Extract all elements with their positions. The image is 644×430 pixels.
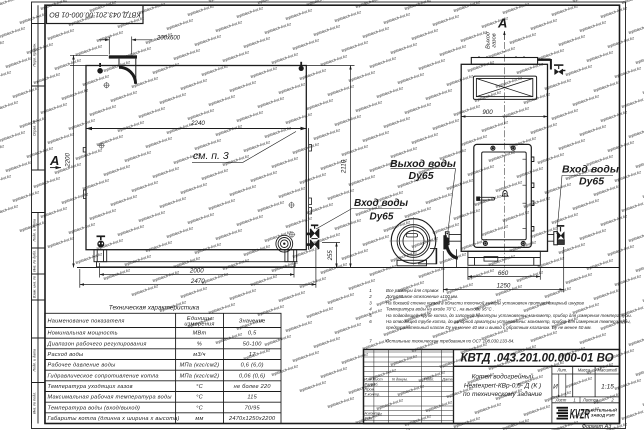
svg-text:teplotech-kvr.kz: teplotech-kvr.kz bbox=[565, 271, 593, 285]
svg-text:МПа (кгс/см2): МПа (кгс/см2) bbox=[180, 373, 220, 379]
svg-text:Максимальная рабочая температу: Максимальная рабочая температура воды bbox=[48, 395, 172, 401]
svg-text:teplotech-kvr.kz: teplotech-kvr.kz bbox=[495, 179, 523, 193]
svg-text:teplotech-kvr.kz: teplotech-kvr.kz bbox=[103, 163, 131, 177]
svg-text:На отводящей трубе котла, до з: На отводящей трубе котла, до запорной ар… bbox=[386, 319, 631, 324]
svg-text:teplotech-kvr.kz: teplotech-kvr.kz bbox=[558, 137, 586, 151]
svg-text:teplotech-kvr.kz: teplotech-kvr.kz bbox=[334, 9, 362, 23]
svg-text:teplotech-kvr.kz: teplotech-kvr.kz bbox=[362, 25, 390, 39]
svg-text:teplotech-kvr.kz: teplotech-kvr.kz bbox=[621, 407, 644, 421]
svg-text:teplotech-kvr.kz: teplotech-kvr.kz bbox=[327, 291, 355, 305]
svg-text:teplotech-kvr.kz: teplotech-kvr.kz bbox=[285, 111, 313, 125]
svg-text:teplotech-kvr.kz: teplotech-kvr.kz bbox=[530, 329, 558, 343]
svg-text:teplotech-kvr.kz: teplotech-kvr.kz bbox=[40, 101, 68, 115]
svg-text:KVZR: KVZR bbox=[570, 407, 590, 422]
svg-text:teplotech-kvr.kz: teplotech-kvr.kz bbox=[509, 31, 537, 45]
svg-text:Допустимое отклонение ±100 мм: Допустимое отклонение ±100 мм. bbox=[385, 294, 458, 299]
svg-text:teplotech-kvr.kz: teplotech-kvr.kz bbox=[523, 403, 551, 417]
svg-text:teplotech-kvr.kz: teplotech-kvr.kz bbox=[292, 37, 320, 51]
svg-text:teplotech-kvr.kz: teplotech-kvr.kz bbox=[75, 147, 103, 161]
svg-text:На подводящей трубе котла, до: На подводящей трубе котла, до запорной а… bbox=[386, 313, 632, 318]
svg-text:Остальные технические требован: Остальные технические требования по ОСТ … bbox=[386, 339, 515, 344]
svg-text:Т.контр.: Т.контр. bbox=[365, 392, 381, 397]
svg-text:teplotech-kvr.kz: teplotech-kvr.kz bbox=[138, 105, 166, 119]
svg-text:teplotech-kvr.kz: teplotech-kvr.kz bbox=[376, 397, 404, 411]
svg-text:teplotech-kvr.kz: teplotech-kvr.kz bbox=[495, 75, 523, 89]
svg-text:2470х1250х2200: 2470х1250х2200 bbox=[228, 416, 276, 422]
svg-text:2000: 2000 bbox=[189, 268, 204, 275]
svg-text:teplotech-kvr.kz: teplotech-kvr.kz bbox=[131, 283, 159, 297]
svg-text:teplotech-kvr.kz: teplotech-kvr.kz bbox=[257, 199, 285, 213]
svg-text:0,06 (0,6): 0,06 (0,6) bbox=[239, 373, 265, 379]
svg-text:teplotech-kvr.kz: teplotech-kvr.kz bbox=[152, 269, 180, 283]
svg-text:teplotech-kvr.kz: teplotech-kvr.kz bbox=[271, 51, 299, 65]
svg-text:teplotech-kvr.kz: teplotech-kvr.kz bbox=[61, 191, 89, 205]
svg-text:teplotech-kvr.kz: teplotech-kvr.kz bbox=[404, 101, 432, 115]
svg-text:teplotech-kvr.kz: teplotech-kvr.kz bbox=[600, 5, 628, 19]
svg-text:teplotech-kvr.kz: teplotech-kvr.kz bbox=[250, 169, 278, 183]
svg-text:teplotech-kvr.kz: teplotech-kvr.kz bbox=[446, 177, 474, 191]
svg-text:Выход воды: Выход воды bbox=[390, 158, 456, 170]
svg-text:teplotech-kvr.kz: teplotech-kvr.kz bbox=[600, 213, 628, 227]
svg-text:teplotech-kvr.kz: teplotech-kvr.kz bbox=[467, 163, 495, 177]
svg-text:Габариты котла (длинна х ширин: Габариты котла (длинна х ширина х высота… bbox=[48, 416, 180, 422]
svg-text:teplotech-kvr.kz: teplotech-kvr.kz bbox=[383, 115, 411, 129]
svg-text:teplotech-kvr.kz: teplotech-kvr.kz bbox=[166, 17, 194, 31]
svg-text:Номинальная мощность: Номинальная мощность bbox=[48, 331, 118, 337]
svg-text:Масштаб: Масштаб bbox=[598, 368, 618, 373]
svg-text:teplotech-kvr.kz: teplotech-kvr.kz bbox=[635, 259, 644, 273]
svg-text:teplotech-kvr.kz: teplotech-kvr.kz bbox=[390, 353, 418, 367]
svg-text:teplotech-kvr.kz: teplotech-kvr.kz bbox=[635, 155, 644, 169]
svg-text:teplotech-kvr.kz: teplotech-kvr.kz bbox=[138, 1, 166, 15]
svg-text:teplotech-kvr.kz: teplotech-kvr.kz bbox=[5, 55, 33, 69]
svg-text:17: 17 bbox=[249, 352, 256, 358]
svg-text:teplotech-kvr.kz: teplotech-kvr.kz bbox=[404, 413, 432, 427]
svg-text:teplotech-kvr.kz: teplotech-kvr.kz bbox=[621, 95, 644, 109]
svg-text:teplotech-kvr.kz: teplotech-kvr.kz bbox=[516, 61, 544, 75]
svg-text:teplotech-kvr.kz: teplotech-kvr.kz bbox=[0, 173, 12, 187]
svg-text:teplotech-kvr.kz: teplotech-kvr.kz bbox=[75, 251, 103, 265]
svg-text:°С: °С bbox=[196, 395, 203, 401]
svg-text:N докум.: N докум. bbox=[392, 376, 408, 381]
svg-text:teplotech-kvr.kz: teplotech-kvr.kz bbox=[432, 13, 460, 27]
svg-text:teplotech-kvr.kz: teplotech-kvr.kz bbox=[236, 213, 264, 227]
svg-text:teplotech-kvr.kz: teplotech-kvr.kz bbox=[201, 167, 229, 181]
svg-text:Рабочее давление воды: Рабочее давление воды bbox=[48, 363, 116, 369]
svg-text:teplotech-kvr.kz: teplotech-kvr.kz bbox=[439, 251, 467, 265]
svg-text:teplotech-kvr.kz: teplotech-kvr.kz bbox=[229, 79, 257, 93]
svg-text:teplotech-kvr.kz: teplotech-kvr.kz bbox=[383, 11, 411, 25]
svg-text:teplotech-kvr.kz: teplotech-kvr.kz bbox=[257, 303, 285, 317]
svg-text:%: % bbox=[197, 341, 202, 347]
svg-text:teplotech-kvr.kz: teplotech-kvr.kz bbox=[565, 375, 593, 389]
svg-text:teplotech-kvr.kz: teplotech-kvr.kz bbox=[159, 195, 187, 209]
svg-text:teplotech-kvr.kz: teplotech-kvr.kz bbox=[117, 223, 145, 237]
svg-text:teplotech-kvr.kz: teplotech-kvr.kz bbox=[5, 159, 33, 173]
svg-text:Утв.: Утв. bbox=[365, 416, 374, 421]
svg-text:teplotech-kvr.kz: teplotech-kvr.kz bbox=[0, 0, 19, 9]
svg-text:teplotech-kvr.kz: teplotech-kvr.kz bbox=[180, 285, 208, 299]
svg-text:teplotech-kvr.kz: teplotech-kvr.kz bbox=[257, 0, 285, 5]
svg-text:Котел водогрейный: Котел водогрейный bbox=[472, 373, 534, 381]
svg-text:teplotech-kvr.kz: teplotech-kvr.kz bbox=[145, 239, 173, 253]
svg-text:teplotech-kvr.kz: teplotech-kvr.kz bbox=[138, 209, 166, 223]
svg-text:teplotech-kvr.kz: teplotech-kvr.kz bbox=[243, 35, 271, 49]
svg-text:teplotech-kvr.kz: teplotech-kvr.kz bbox=[61, 87, 89, 101]
svg-text:teplotech-kvr.kz: teplotech-kvr.kz bbox=[306, 305, 334, 319]
svg-text:2240: 2240 bbox=[190, 120, 205, 127]
svg-text:Расход воды: Расход воды bbox=[48, 352, 84, 358]
svg-text:2110: 2110 bbox=[341, 159, 348, 174]
svg-text:teplotech-kvr.kz: teplotech-kvr.kz bbox=[159, 91, 187, 105]
svg-text:teplotech-kvr.kz: teplotech-kvr.kz bbox=[19, 11, 47, 25]
svg-text:teplotech-kvr.kz: teplotech-kvr.kz bbox=[397, 383, 425, 397]
svg-text:teplotech-kvr.kz: teplotech-kvr.kz bbox=[47, 27, 75, 41]
svg-text:teplotech-kvr.kz: teplotech-kvr.kz bbox=[341, 247, 369, 261]
svg-text:teplotech-kvr.kz: teplotech-kvr.kz bbox=[47, 235, 75, 249]
svg-text:teplotech-kvr.kz: teplotech-kvr.kz bbox=[614, 377, 642, 391]
svg-text:1: 1 bbox=[369, 288, 372, 293]
svg-text:teplotech-kvr.kz: teplotech-kvr.kz bbox=[341, 351, 369, 365]
svg-text:teplotech-kvr.kz: teplotech-kvr.kz bbox=[586, 49, 614, 63]
svg-text:teplotech-kvr.kz: teplotech-kvr.kz bbox=[425, 191, 453, 205]
svg-text:200х600: 200х600 bbox=[156, 35, 181, 41]
svg-text:50-100: 50-100 bbox=[243, 341, 263, 347]
svg-text:teplotech-kvr.kz: teplotech-kvr.kz bbox=[250, 273, 278, 287]
svg-text:teplotech-kvr.kz: teplotech-kvr.kz bbox=[586, 257, 614, 271]
svg-text:°С: °С bbox=[196, 405, 203, 411]
svg-text:А: А bbox=[49, 153, 59, 168]
svg-text:teplotech-kvr.kz: teplotech-kvr.kz bbox=[187, 107, 215, 121]
svg-text:teplotech-kvr.kz: teplotech-kvr.kz bbox=[544, 285, 572, 299]
svg-text:teplotech-kvr.kz: teplotech-kvr.kz bbox=[313, 23, 341, 37]
svg-text:teplotech-kvr.kz: teplotech-kvr.kz bbox=[264, 125, 292, 139]
svg-text:teplotech-kvr.kz: teplotech-kvr.kz bbox=[103, 267, 131, 281]
svg-text:teplotech-kvr.kz: teplotech-kvr.kz bbox=[418, 57, 446, 71]
svg-text:На боковой стенке котла в обла: На боковой стенке котла в области топочн… bbox=[386, 300, 584, 305]
svg-text:Температура воды (вход/выход): Температура воды (вход/выход) bbox=[48, 405, 141, 411]
svg-text:Формат А3: Формат А3 bbox=[582, 424, 612, 430]
svg-text:teplotech-kvr.kz: teplotech-kvr.kz bbox=[551, 211, 579, 225]
svg-text:teplotech-kvr.kz: teplotech-kvr.kz bbox=[341, 39, 369, 53]
svg-text:1:15: 1:15 bbox=[601, 384, 614, 391]
svg-text:1250: 1250 bbox=[497, 283, 511, 290]
svg-text:teplotech-kvr.kz: teplotech-kvr.kz bbox=[453, 103, 481, 117]
svg-text:teplotech-kvr.kz: teplotech-kvr.kz bbox=[341, 143, 369, 157]
svg-text:teplotech-kvr.kz: teplotech-kvr.kz bbox=[579, 227, 607, 241]
svg-text:teplotech-kvr.kz: teplotech-kvr.kz bbox=[215, 19, 243, 33]
svg-text:teplotech-kvr.kz: teplotech-kvr.kz bbox=[488, 149, 516, 163]
svg-text:teplotech-kvr.kz: teplotech-kvr.kz bbox=[215, 227, 243, 241]
svg-text:КВТД .043.201.00.000-01 ВО: КВТД .043.201.00.000-01 ВО bbox=[460, 353, 613, 365]
svg-text:0,5: 0,5 bbox=[248, 331, 257, 337]
svg-text:teplotech-kvr.kz: teplotech-kvr.kz bbox=[180, 181, 208, 195]
svg-text:teplotech-kvr.kz: teplotech-kvr.kz bbox=[348, 173, 376, 187]
svg-text:teplotech-kvr.kz: teplotech-kvr.kz bbox=[425, 87, 453, 101]
svg-text:Температура уходящих газов: Температура уходящих газов bbox=[48, 384, 133, 390]
svg-text:900: 900 bbox=[482, 109, 493, 116]
svg-text:teplotech-kvr.kz: teplotech-kvr.kz bbox=[411, 27, 439, 41]
svg-text:teplotech-kvr.kz: teplotech-kvr.kz bbox=[614, 65, 642, 79]
svg-text:teplotech-kvr.kz: teplotech-kvr.kz bbox=[502, 209, 530, 223]
svg-text:teplotech-kvr.kz: teplotech-kvr.kz bbox=[145, 135, 173, 149]
svg-text:70/95: 70/95 bbox=[245, 405, 261, 411]
svg-text:teplotech-kvr.kz: teplotech-kvr.kz bbox=[635, 363, 644, 377]
svg-text:teplotech-kvr.kz: teplotech-kvr.kz bbox=[117, 119, 145, 133]
svg-text:Гидравлическое сопротивление к: Гидравлическое сопротивление котла bbox=[48, 373, 159, 379]
svg-text:Взам. инв. №: Взам. инв. № bbox=[33, 276, 37, 298]
svg-text:teplotech-kvr.kz: teplotech-kvr.kz bbox=[320, 261, 348, 275]
svg-text:Лит.: Лит. bbox=[556, 368, 567, 373]
svg-text:газов: газов bbox=[492, 33, 498, 47]
svg-text:teplotech-kvr.kz: teplotech-kvr.kz bbox=[516, 269, 544, 283]
svg-text:teplotech-kvr.kz: teplotech-kvr.kz bbox=[327, 395, 355, 409]
svg-text:2470: 2470 bbox=[190, 278, 205, 285]
svg-text:115: 115 bbox=[247, 395, 257, 401]
svg-text:teplotech-kvr.kz: teplotech-kvr.kz bbox=[628, 125, 644, 139]
svg-text:teplotech-kvr.kz: teplotech-kvr.kz bbox=[299, 275, 327, 289]
svg-text:Диапазон рабочего регулировани: Диапазон рабочего регулирования bbox=[47, 341, 147, 347]
svg-text:teplotech-kvr.kz: teplotech-kvr.kz bbox=[278, 289, 306, 303]
svg-text:teplotech-kvr.kz: teplotech-kvr.kz bbox=[530, 17, 558, 31]
svg-text:не более 220: не более 220 bbox=[234, 384, 272, 390]
svg-text:teplotech-kvr.kz: teplotech-kvr.kz bbox=[271, 155, 299, 169]
svg-text:Дата: Дата bbox=[441, 376, 453, 381]
svg-text:teplotech-kvr.kz: teplotech-kvr.kz bbox=[362, 129, 390, 143]
svg-text:teplotech-kvr.kz: teplotech-kvr.kz bbox=[306, 97, 334, 111]
svg-text:teplotech-kvr.kz: teplotech-kvr.kz bbox=[376, 85, 404, 99]
svg-text:teplotech-kvr.kz: teplotech-kvr.kz bbox=[236, 5, 264, 19]
svg-text:teplotech-kvr.kz: teplotech-kvr.kz bbox=[537, 255, 565, 269]
svg-text:teplotech-kvr.kz: teplotech-kvr.kz bbox=[264, 333, 292, 347]
svg-text:teplotech-kvr.kz: teplotech-kvr.kz bbox=[565, 63, 593, 77]
svg-text:teplotech-kvr.kz: teplotech-kvr.kz bbox=[390, 41, 418, 55]
svg-text:teplotech-kvr.kz: teplotech-kvr.kz bbox=[432, 117, 460, 131]
svg-text:teplotech-kvr.kz: teplotech-kvr.kz bbox=[250, 65, 278, 79]
svg-text:teplotech-kvr.kz: teplotech-kvr.kz bbox=[523, 195, 551, 209]
svg-text:teplotech-kvr.kz: teplotech-kvr.kz bbox=[572, 197, 600, 211]
svg-text:teplotech-kvr.kz: teplotech-kvr.kz bbox=[194, 137, 222, 151]
svg-text:teplotech-kvr.kz: teplotech-kvr.kz bbox=[453, 207, 481, 221]
svg-text:teplotech-kvr.kz: teplotech-kvr.kz bbox=[502, 1, 530, 15]
svg-text:teplotech-kvr.kz: teplotech-kvr.kz bbox=[313, 127, 341, 141]
svg-text:teplotech-kvr.kz: teplotech-kvr.kz bbox=[579, 331, 607, 345]
svg-text:2: 2 bbox=[368, 294, 372, 299]
svg-text:0,6 (6,0): 0,6 (6,0) bbox=[241, 363, 264, 369]
svg-text:teplotech-kvr.kz: teplotech-kvr.kz bbox=[299, 171, 327, 185]
svg-text:teplotech-kvr.kz: teplotech-kvr.kz bbox=[579, 123, 607, 137]
svg-text:teplotech-kvr.kz: teplotech-kvr.kz bbox=[0, 25, 26, 39]
svg-text:teplotech-kvr.kz: teplotech-kvr.kz bbox=[75, 43, 103, 57]
svg-text:teplotech-kvr.kz: teplotech-kvr.kz bbox=[278, 185, 306, 199]
svg-text:ЗАВОД РЭП: ЗАВОД РЭП bbox=[591, 412, 615, 417]
svg-text:teplotech-kvr.kz: teplotech-kvr.kz bbox=[47, 131, 75, 145]
svg-text:teplotech-kvr.kz: teplotech-kvr.kz bbox=[54, 57, 82, 71]
svg-text:teplotech-kvr.kz: teplotech-kvr.kz bbox=[96, 133, 124, 147]
svg-text:teplotech-kvr.kz: teplotech-kvr.kz bbox=[257, 95, 285, 109]
svg-text:teplotech-kvr.kz: teplotech-kvr.kz bbox=[201, 271, 229, 285]
svg-text:teplotech-kvr.kz: teplotech-kvr.kz bbox=[0, 69, 12, 83]
svg-text:Dy65: Dy65 bbox=[409, 170, 434, 182]
svg-text:teplotech-kvr.kz: teplotech-kvr.kz bbox=[530, 121, 558, 135]
svg-text:teplotech-kvr.kz: teplotech-kvr.kz bbox=[68, 221, 96, 235]
svg-text:teplotech-kvr.kz: teplotech-kvr.kz bbox=[607, 35, 635, 49]
svg-text:°С: °С bbox=[196, 384, 203, 390]
svg-text:teplotech-kvr.kz: teplotech-kvr.kz bbox=[299, 379, 327, 393]
svg-text:МПа (кгс/см2): МПа (кгс/см2) bbox=[180, 363, 220, 369]
svg-text:teplotech-kvr.kz: teplotech-kvr.kz bbox=[292, 349, 320, 363]
svg-text:см. п. 3: см. п. 3 bbox=[193, 150, 229, 162]
svg-text:Heatexpert-КВр-0,5- Д (К ): Heatexpert-КВр-0,5- Д (К ) bbox=[464, 382, 541, 389]
svg-text:Инв. № подл.: Инв. № подл. bbox=[33, 392, 37, 414]
svg-text:teplotech-kvr.kz: teplotech-kvr.kz bbox=[173, 47, 201, 61]
svg-text:teplotech-kvr.kz: teplotech-kvr.kz bbox=[502, 105, 530, 119]
svg-text:teplotech-kvr.kz: teplotech-kvr.kz bbox=[369, 263, 397, 277]
svg-text:teplotech-kvr.kz: teplotech-kvr.kz bbox=[0, 99, 19, 113]
svg-text:предохранительный клапан Dy не: предохранительный клапан Dy не менее 40 … bbox=[386, 325, 592, 330]
svg-text:МВт: МВт bbox=[193, 331, 207, 337]
svg-text:teplotech-kvr.kz: teplotech-kvr.kz bbox=[278, 81, 306, 95]
svg-text:teplotech-kvr.kz: teplotech-kvr.kz bbox=[285, 319, 313, 333]
svg-text:teplotech-kvr.kz: teplotech-kvr.kz bbox=[334, 217, 362, 231]
svg-text:teplotech-kvr.kz: teplotech-kvr.kz bbox=[509, 135, 537, 149]
svg-text:teplotech-kvr.kz: teplotech-kvr.kz bbox=[89, 207, 117, 221]
svg-text:teplotech-kvr.kz: teplotech-kvr.kz bbox=[467, 267, 495, 281]
svg-text:teplotech-kvr.kz: teplotech-kvr.kz bbox=[593, 287, 621, 301]
svg-text:Инв. № дубл.: Инв. № дубл. bbox=[33, 250, 37, 272]
svg-text:по техническому задание: по техническому задание bbox=[463, 390, 542, 398]
svg-text:teplotech-kvr.kz: teplotech-kvr.kz bbox=[621, 0, 644, 5]
svg-text:Масса: Масса bbox=[578, 368, 591, 373]
svg-text:teplotech-kvr.kz: teplotech-kvr.kz bbox=[26, 41, 54, 55]
svg-text:И: И bbox=[553, 384, 558, 391]
svg-text:teplotech-kvr.kz: teplotech-kvr.kz bbox=[593, 79, 621, 93]
svg-text:teplotech-kvr.kz: teplotech-kvr.kz bbox=[12, 189, 40, 203]
svg-text:teplotech-kvr.kz: teplotech-kvr.kz bbox=[572, 93, 600, 107]
svg-text:teplotech-kvr.kz: teplotech-kvr.kz bbox=[390, 145, 418, 159]
svg-text:teplotech-kvr.kz: teplotech-kvr.kz bbox=[264, 21, 292, 35]
svg-text:2200: 2200 bbox=[64, 153, 71, 168]
svg-text:Dy65: Dy65 bbox=[370, 212, 394, 223]
svg-text:teplotech-kvr.kz: teplotech-kvr.kz bbox=[628, 229, 644, 243]
svg-text:teplotech-kvr.kz: teplotech-kvr.kz bbox=[614, 273, 642, 287]
svg-text:teplotech-kvr.kz: teplotech-kvr.kz bbox=[229, 287, 257, 301]
svg-text:teplotech-kvr.kz: teplotech-kvr.kz bbox=[131, 179, 159, 193]
svg-text:teplotech-kvr.kz: teplotech-kvr.kz bbox=[0, 129, 26, 143]
svg-text:Наименование показателя: Наименование показателя bbox=[48, 319, 125, 325]
svg-text:teplotech-kvr.kz: teplotech-kvr.kz bbox=[313, 335, 341, 349]
svg-text:Перв. примен.: Перв. примен. bbox=[33, 43, 37, 67]
svg-text:teplotech-kvr.kz: teplotech-kvr.kz bbox=[33, 175, 61, 189]
svg-text:teplotech-kvr.kz: teplotech-kvr.kz bbox=[0, 203, 19, 217]
svg-text:мм: мм bbox=[195, 416, 203, 422]
svg-text:teplotech-kvr.kz: teplotech-kvr.kz bbox=[110, 89, 138, 103]
svg-text:КВТД.043.201.00.000-01 ВО: КВТД.043.201.00.000-01 ВО bbox=[49, 10, 141, 18]
svg-text:teplotech-kvr.kz: teplotech-kvr.kz bbox=[166, 225, 194, 239]
svg-text:teplotech-kvr.kz: teplotech-kvr.kz bbox=[453, 415, 481, 429]
svg-text:1: 1 bbox=[573, 397, 575, 402]
svg-text:teplotech-kvr.kz: teplotech-kvr.kz bbox=[355, 99, 383, 113]
svg-text:Вход воды: Вход воды bbox=[562, 164, 619, 176]
svg-text:teplotech-kvr.kz: teplotech-kvr.kz bbox=[320, 53, 348, 67]
svg-text:Температура воды на входе 70°: Температура воды на входе 70°С , на выхо… bbox=[386, 307, 494, 312]
svg-text:teplotech-kvr.kz: teplotech-kvr.kz bbox=[243, 139, 271, 153]
svg-text:teplotech-kvr.kz: teplotech-kvr.kz bbox=[516, 165, 544, 179]
svg-text:teplotech-kvr.kz: teplotech-kvr.kz bbox=[194, 33, 222, 47]
svg-text:Dy65: Dy65 bbox=[579, 176, 604, 188]
svg-text:teplotech-kvr.kz: teplotech-kvr.kz bbox=[215, 123, 243, 137]
svg-text:teplotech-kvr.kz: teplotech-kvr.kz bbox=[607, 243, 635, 257]
svg-text:teplotech-kvr.kz: teplotech-kvr.kz bbox=[348, 69, 376, 83]
svg-text:teplotech-kvr.kz: teplotech-kvr.kz bbox=[551, 107, 579, 121]
svg-text:teplotech-kvr.kz: teplotech-kvr.kz bbox=[187, 211, 215, 225]
svg-text:teplotech-kvr.kz: teplotech-kvr.kz bbox=[96, 29, 124, 43]
svg-text:teplotech-kvr.kz: teplotech-kvr.kz bbox=[208, 197, 236, 211]
svg-text:Вход воды: Вход воды bbox=[354, 198, 409, 209]
svg-text:teplotech-kvr.kz: teplotech-kvr.kz bbox=[110, 193, 138, 207]
svg-text:teplotech-kvr.kz: teplotech-kvr.kz bbox=[222, 49, 250, 63]
svg-text:Все размеры для справок: Все размеры для справок bbox=[386, 288, 440, 293]
svg-text:teplotech-kvr.kz: teplotech-kvr.kz bbox=[89, 103, 117, 117]
svg-text:teplotech-kvr.kz: teplotech-kvr.kz bbox=[229, 183, 257, 197]
svg-text:teplotech-kvr.kz: teplotech-kvr.kz bbox=[537, 151, 565, 165]
svg-text:teplotech-kvr.kz: teplotech-kvr.kz bbox=[558, 33, 586, 47]
svg-text:Справ. №: Справ. № bbox=[33, 120, 37, 136]
svg-text:teplotech-kvr.kz: teplotech-kvr.kz bbox=[362, 233, 390, 247]
svg-text:м3/ч: м3/ч bbox=[193, 352, 205, 358]
svg-text:Техническая характеристика: Техническая характеристика bbox=[109, 305, 200, 312]
svg-text:teplotech-kvr.kz: teplotech-kvr.kz bbox=[236, 109, 264, 123]
svg-text:teplotech-kvr.kz: teplotech-kvr.kz bbox=[33, 71, 61, 85]
svg-text:Подп. и дата: Подп. и дата bbox=[33, 219, 37, 242]
svg-text:teplotech-kvr.kz: teplotech-kvr.kz bbox=[397, 71, 425, 85]
svg-text:teplotech-kvr.kz: teplotech-kvr.kz bbox=[285, 7, 313, 21]
svg-text:teplotech-kvr.kz: teplotech-kvr.kz bbox=[334, 113, 362, 127]
svg-text:teplotech-kvr.kz: teplotech-kvr.kz bbox=[369, 55, 397, 69]
svg-text:Подп. и дата: Подп. и дата bbox=[33, 349, 37, 372]
svg-text:teplotech-kvr.kz: teplotech-kvr.kz bbox=[600, 109, 628, 123]
svg-text:измерения: измерения bbox=[184, 322, 214, 328]
svg-text:Листов: Листов bbox=[582, 397, 599, 402]
svg-text:teplotech-kvr.kz: teplotech-kvr.kz bbox=[628, 21, 644, 35]
svg-text:teplotech-kvr.kz: teplotech-kvr.kz bbox=[320, 365, 348, 379]
svg-text:teplotech-kvr.kz: teplotech-kvr.kz bbox=[411, 131, 439, 145]
svg-text:teplotech-kvr.kz: teplotech-kvr.kz bbox=[607, 139, 635, 153]
svg-text:teplotech-kvr.kz: teplotech-kvr.kz bbox=[222, 257, 250, 271]
svg-text:Значение: Значение bbox=[239, 319, 266, 325]
svg-text:teplotech-kvr.kz: teplotech-kvr.kz bbox=[628, 333, 644, 347]
svg-text:Лист: Лист bbox=[555, 397, 567, 402]
svg-text:3: 3 bbox=[369, 300, 372, 305]
svg-text:teplotech-kvr.kz: teplotech-kvr.kz bbox=[12, 85, 40, 99]
svg-text:teplotech-kvr.kz: teplotech-kvr.kz bbox=[635, 51, 644, 65]
svg-text:255: 255 bbox=[328, 250, 334, 262]
svg-text:teplotech-kvr.kz: teplotech-kvr.kz bbox=[446, 73, 474, 87]
svg-text:teplotech-kvr.kz: teplotech-kvr.kz bbox=[180, 77, 208, 91]
svg-text:teplotech-kvr.kz: teplotech-kvr.kz bbox=[334, 321, 362, 335]
svg-text:6: 6 bbox=[369, 319, 372, 324]
svg-text:teplotech-kvr.kz: teplotech-kvr.kz bbox=[306, 201, 334, 215]
svg-text:teplotech-kvr.kz: teplotech-kvr.kz bbox=[0, 143, 5, 157]
svg-text:teplotech-kvr.kz: teplotech-kvr.kz bbox=[439, 43, 467, 57]
svg-text:teplotech-kvr.kz: teplotech-kvr.kz bbox=[579, 19, 607, 33]
svg-text:teplotech-kvr.kz: teplotech-kvr.kz bbox=[208, 93, 236, 107]
svg-text:660: 660 bbox=[498, 270, 509, 277]
svg-text:teplotech-kvr.kz: teplotech-kvr.kz bbox=[0, 39, 5, 53]
svg-text:teplotech-kvr.kz: teplotech-kvr.kz bbox=[124, 253, 152, 267]
svg-text:teplotech-kvr.kz: teplotech-kvr.kz bbox=[474, 401, 502, 415]
svg-text:teplotech-kvr.kz: teplotech-kvr.kz bbox=[446, 281, 474, 295]
